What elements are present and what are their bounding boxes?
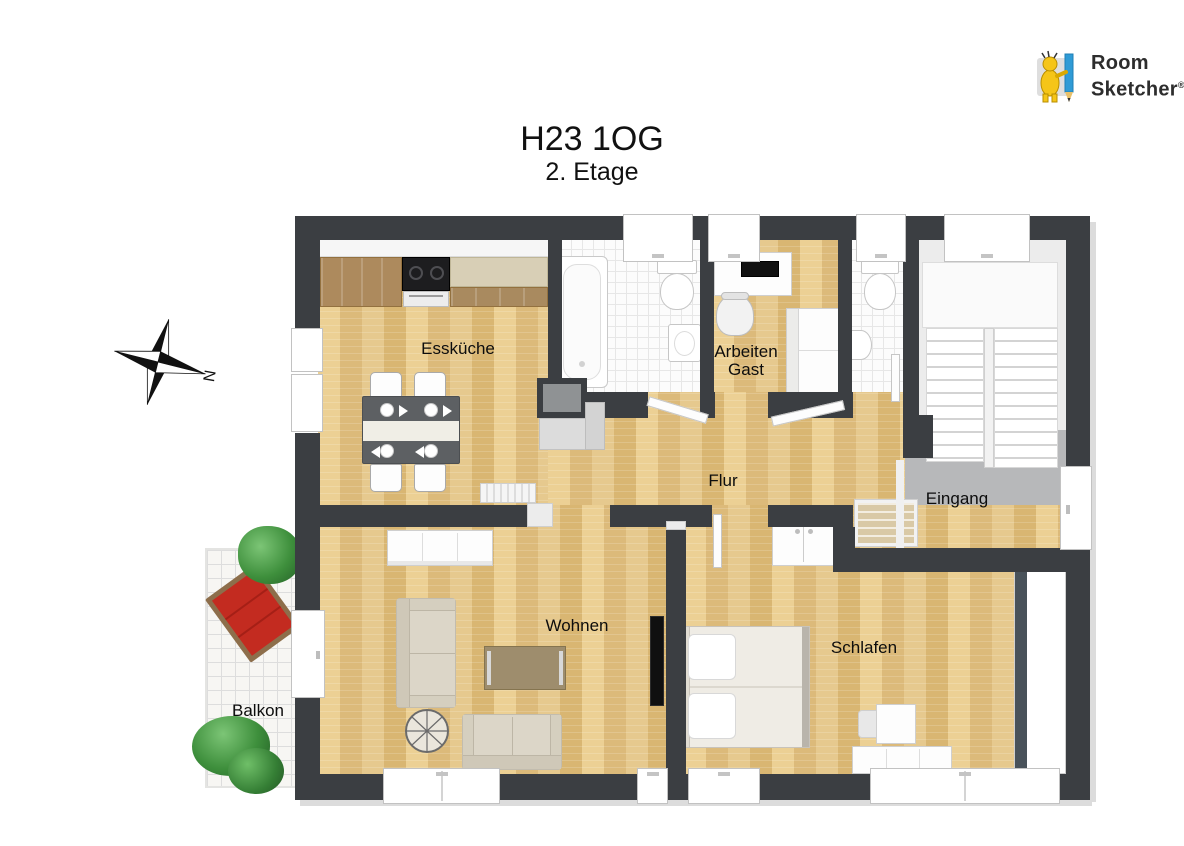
stair-landing xyxy=(922,262,1058,328)
sink xyxy=(668,324,701,362)
toilet-tank xyxy=(657,260,697,274)
loveseat-armrest xyxy=(463,715,474,755)
stair-divider xyxy=(984,328,994,468)
napkin xyxy=(443,405,452,417)
window-mullion xyxy=(964,771,966,801)
stair-flight-left xyxy=(926,328,984,462)
roomsketcher-logo-text: Room Sketcher® xyxy=(1091,52,1184,101)
bed-frame-edge xyxy=(802,627,809,747)
room-label-arbeiten-gast: Arbeiten Gast xyxy=(714,343,777,379)
sofa-armrest xyxy=(410,599,455,611)
door-handle xyxy=(316,651,320,659)
logo-line2: Sketcher xyxy=(1091,79,1178,101)
kitchen-cabinet-corner xyxy=(320,257,402,307)
wardrobe xyxy=(1014,566,1066,774)
window-kueche xyxy=(291,374,323,432)
stove-cooktop xyxy=(402,257,450,291)
window-wohnen-klein xyxy=(637,768,668,804)
room-label-gast: Gast xyxy=(728,360,764,379)
wc-door-leaf xyxy=(891,354,900,402)
oven-front xyxy=(403,291,449,307)
chimney-top xyxy=(543,384,581,412)
toilet-bowl xyxy=(864,273,896,310)
napkin xyxy=(415,446,424,458)
window-schlafen xyxy=(688,768,760,804)
lounger-fold xyxy=(225,588,268,620)
stair-flight-right xyxy=(994,328,1058,468)
wall-schlafen-nord xyxy=(768,505,853,527)
eingang-threshold xyxy=(896,460,904,548)
pillow xyxy=(688,693,736,739)
compass-north-label: N xyxy=(199,369,218,383)
burner xyxy=(409,266,423,280)
door-handle xyxy=(1066,505,1070,514)
loveseat xyxy=(462,714,562,770)
bed xyxy=(680,626,810,748)
kitchen-cabinet-front xyxy=(450,287,548,307)
sideboard-divider xyxy=(422,533,423,563)
plate xyxy=(424,444,438,458)
compass-icon: N xyxy=(103,312,223,412)
wall-flur-sued xyxy=(610,505,712,527)
sofa-armrest xyxy=(410,695,455,707)
wall-bad-arbeiten xyxy=(700,240,714,398)
room-label-wohnen: Wohnen xyxy=(545,617,608,635)
toilet-tank xyxy=(861,260,899,274)
sofa xyxy=(396,598,456,708)
room-label-balkon: Balkon xyxy=(232,702,284,720)
table-runner xyxy=(363,421,459,441)
kitchen-counter xyxy=(450,257,548,287)
roomsketcher-logo-icon xyxy=(1035,50,1085,104)
office-chair xyxy=(716,294,754,336)
dining-chair xyxy=(370,464,402,492)
dining-table xyxy=(362,396,460,464)
sofa-back xyxy=(397,599,410,707)
radiator xyxy=(480,483,536,503)
burner xyxy=(430,266,444,280)
cabinet-handle xyxy=(808,529,813,534)
oven-handle xyxy=(409,295,443,297)
room-label-arbeiten: Arbeiten xyxy=(714,342,777,361)
plant xyxy=(238,526,302,584)
balkon-door xyxy=(291,610,325,698)
window-schlafen-breit xyxy=(870,768,1060,804)
sink-basin xyxy=(674,331,695,356)
hall-bench xyxy=(855,500,917,546)
wall-end-cap xyxy=(527,503,553,527)
wall-wohnen-schlafen xyxy=(666,527,686,774)
coffee-table xyxy=(484,646,566,690)
office-chair-back xyxy=(721,292,749,300)
coffee-table-leg xyxy=(487,651,491,685)
window-treppe xyxy=(944,214,1030,262)
daybed xyxy=(786,308,840,394)
wall-kueche-bad xyxy=(548,240,562,392)
plant xyxy=(228,748,284,794)
toilet xyxy=(654,260,700,312)
toilet-bowl xyxy=(660,273,694,310)
window-kueche xyxy=(291,328,323,372)
duvet-crease xyxy=(690,686,802,688)
plate xyxy=(380,444,394,458)
hall-cabinet xyxy=(585,402,605,450)
corner-sink xyxy=(850,330,872,360)
page-title: H23 1OG xyxy=(0,120,1184,159)
sideboard xyxy=(387,530,493,566)
coffee-table-leg xyxy=(559,651,563,685)
wall-end-cap xyxy=(666,521,686,530)
logo-line1: Room xyxy=(1091,52,1149,74)
sideboard-shadow xyxy=(388,561,492,565)
kitchen-upper-cabinets xyxy=(320,240,548,257)
room-label-esskueche: Essküche xyxy=(421,340,495,358)
wall-arbeiten-wc xyxy=(838,240,852,398)
sideboard-divider xyxy=(457,533,458,563)
window-mullion xyxy=(441,771,443,801)
daybed-cushion-line xyxy=(799,350,839,351)
window-bad xyxy=(623,214,693,262)
pillow xyxy=(688,634,736,680)
wall-wc-treppe xyxy=(903,240,919,415)
wall-eingang-schlafen xyxy=(853,548,1090,572)
loveseat-armrest xyxy=(550,715,561,755)
roomsketcher-logo: Room Sketcher® xyxy=(1035,48,1180,106)
floorplan-page: H23 1OG 2. Etage Room Sketcher® xyxy=(0,0,1184,846)
lounger-fold xyxy=(238,606,281,638)
tv xyxy=(650,616,664,706)
wardrobe-side xyxy=(1015,567,1027,773)
room-label-eingang: Eingang xyxy=(926,490,988,508)
loveseat-cushion-line xyxy=(512,717,513,755)
room-label-flur: Flur xyxy=(708,472,737,490)
page-subtitle: 2. Etage xyxy=(0,158,1184,187)
wall-kueche-wohnen xyxy=(295,505,527,527)
laptop xyxy=(741,261,779,277)
daybed-back xyxy=(787,309,799,393)
entry-door xyxy=(1060,466,1092,550)
vanity-desk xyxy=(876,704,916,744)
napkin xyxy=(371,446,380,458)
sofa-cushion-line xyxy=(410,653,455,654)
window-wohnen xyxy=(383,768,500,804)
dining-chair xyxy=(414,464,446,492)
cabinet-handle xyxy=(795,529,800,534)
wall-flur-eingang xyxy=(903,415,933,458)
bathtub-drain xyxy=(579,361,585,367)
cabinet-divider xyxy=(803,524,804,562)
plate xyxy=(380,403,394,417)
plate xyxy=(424,403,438,417)
window-arbeiten xyxy=(708,214,760,262)
room-label-schlafen: Schlafen xyxy=(831,639,897,657)
logo-registered: ® xyxy=(1178,80,1184,90)
wall-knick xyxy=(833,527,855,572)
window-wc xyxy=(856,214,906,262)
toilet xyxy=(858,260,902,312)
schlafen-door-leaf xyxy=(713,514,722,568)
wall-left xyxy=(295,216,320,328)
side-table xyxy=(404,708,450,754)
bathtub xyxy=(556,256,608,388)
loveseat-back xyxy=(463,755,561,769)
napkin xyxy=(399,405,408,417)
